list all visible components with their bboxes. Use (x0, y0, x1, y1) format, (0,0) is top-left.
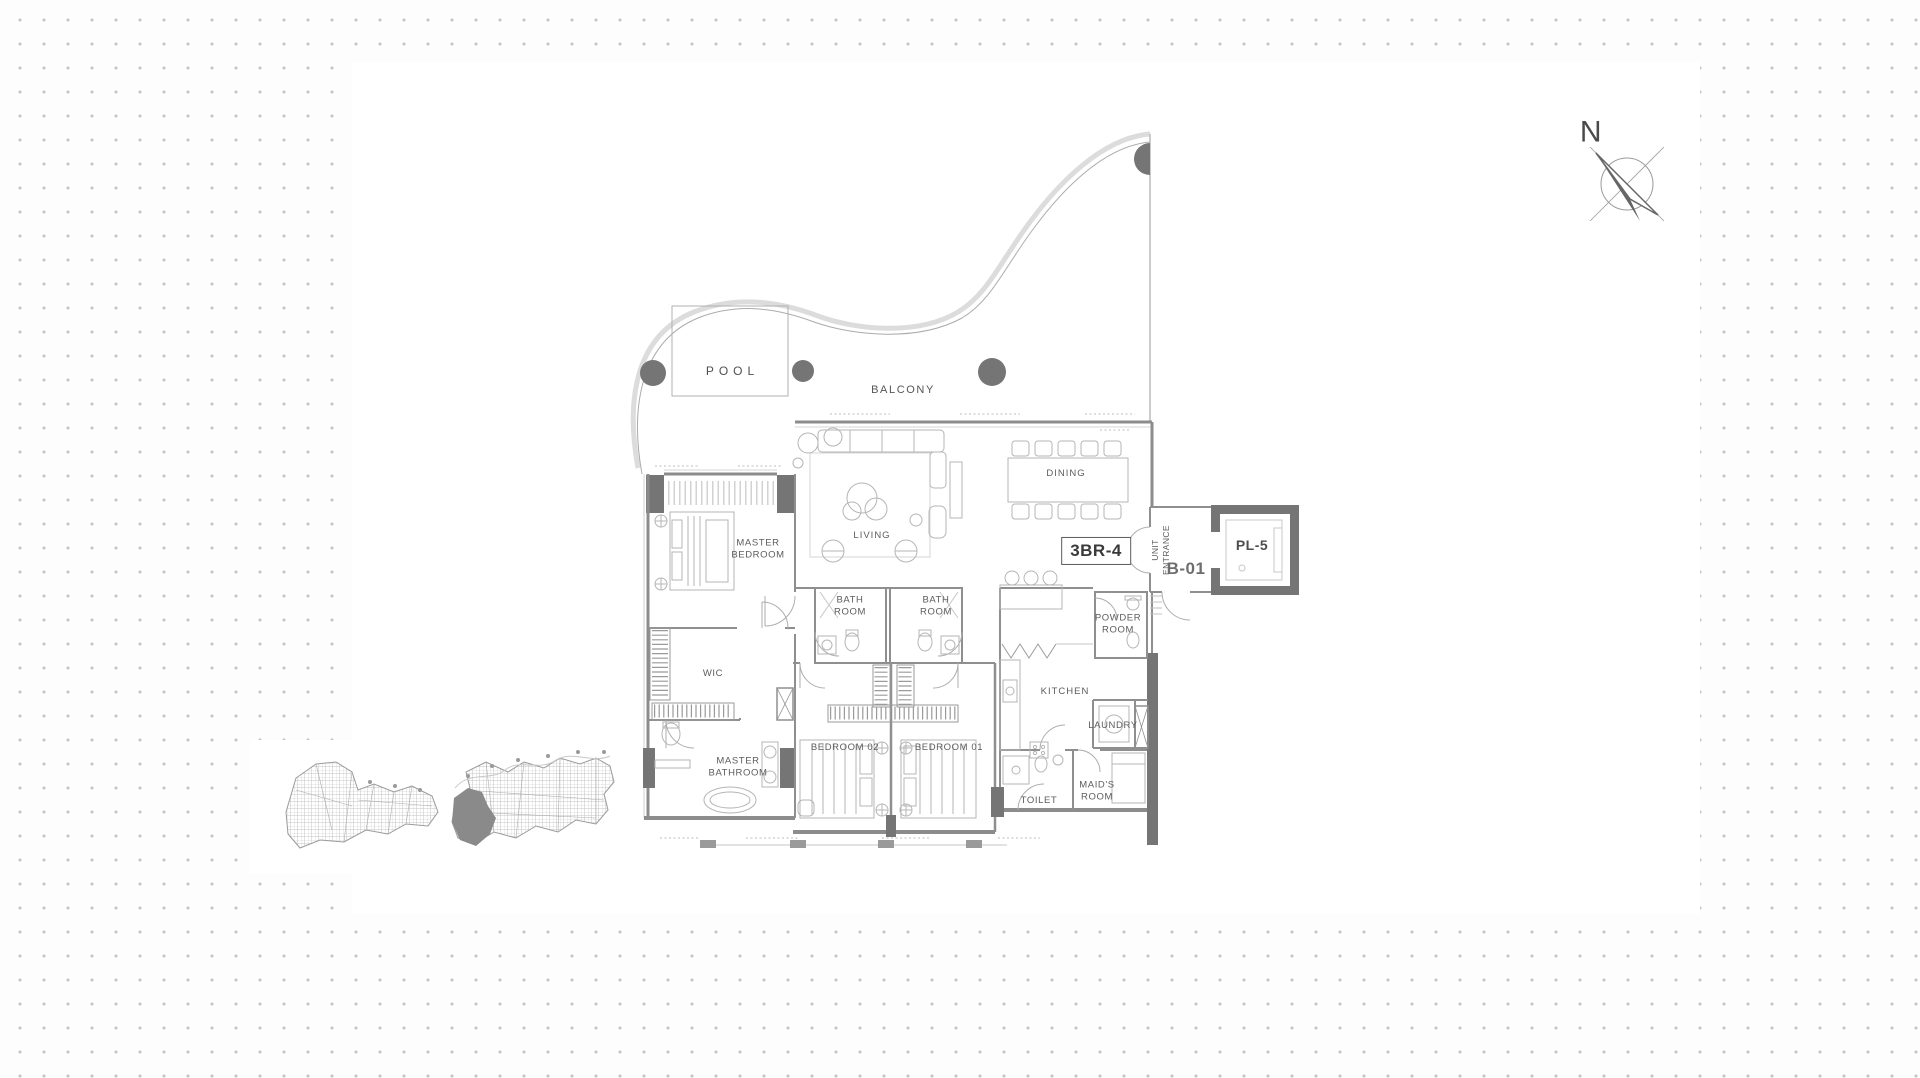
master-bedroom-label: MASTER BEDROOM (731, 538, 784, 563)
structural-wall (1147, 653, 1158, 845)
living-label: LIVING (853, 530, 890, 542)
bedroom-01-label: BEDROOM 01 (915, 742, 983, 754)
bath-room-2-label: BATH ROOM (920, 595, 952, 620)
column (640, 360, 666, 386)
laundry-label: LAUNDRY (1088, 720, 1137, 732)
toilet-label: TOILET (1021, 795, 1058, 807)
bedroom-02-label: BEDROOM 02 (811, 742, 879, 754)
page: { "plan": { "unit_type": "3BR-4", "unit_… (0, 0, 1920, 1078)
pool-label: POOL (701, 364, 759, 380)
floor-plan-drawing (0, 0, 1920, 1078)
compass-graphic (1590, 147, 1664, 221)
column (792, 360, 814, 382)
compass-north-label: N (1580, 113, 1602, 152)
pool-outline (672, 306, 788, 396)
column (978, 358, 1006, 386)
maids-room-label: MAID'S ROOM (1079, 780, 1115, 805)
master-bathroom-label: MASTER BATHROOM (709, 756, 768, 781)
dining-label: DINING (1046, 468, 1085, 480)
column-top (1134, 143, 1150, 175)
closets (650, 493, 958, 722)
lift-label: PL-5 (1236, 536, 1268, 554)
balcony-label: BALCONY (871, 383, 935, 397)
wic-label: WIC (703, 668, 723, 680)
powder-room-label: POWDER ROOM (1095, 613, 1141, 638)
unit-number-label: B-01 (1167, 558, 1206, 580)
kitchen-label: KITCHEN (1041, 686, 1090, 698)
key-plan-right (452, 750, 614, 846)
bath-room-1-label: BATH ROOM (834, 595, 866, 620)
key-plan-left (286, 762, 438, 848)
unit-type-badge: 3BR-4 (1061, 537, 1131, 565)
